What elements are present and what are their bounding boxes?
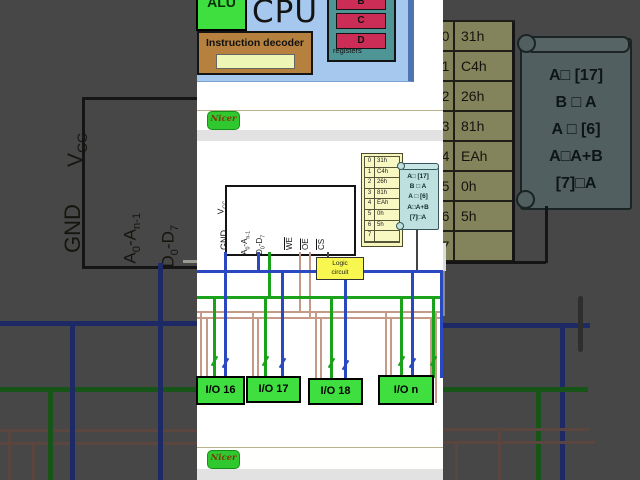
- nicer-logo: Nicer: [207, 111, 240, 130]
- addr-cell: 4: [365, 199, 375, 210]
- logic-label-line1: Logic: [317, 260, 363, 269]
- oe-pin-label: OE: [302, 238, 310, 250]
- scroll-roll: [401, 163, 439, 170]
- bg-data-bus-line-right: [443, 387, 588, 392]
- bg-table-frame-line-v: [512, 22, 515, 263]
- control-branch-line: [252, 312, 254, 378]
- program-line: B □ A: [528, 89, 624, 116]
- bg-control-branch-right-2: [498, 428, 501, 480]
- value-cell: EAh: [455, 142, 513, 172]
- program-line: A□A+B: [399, 203, 437, 213]
- bg-control-bus-line-1: [0, 429, 197, 432]
- scrollbar-thumb[interactable]: [578, 296, 583, 352]
- alu-label: ALU: [198, 0, 245, 10]
- address-pin-line: [257, 252, 260, 271]
- table-row: 7: [438, 232, 513, 262]
- program-line: A□A+B: [528, 143, 624, 170]
- bg-address-branch-line: [70, 321, 75, 480]
- value-cell: C4h: [455, 52, 513, 82]
- decoder-buffer-field: [216, 54, 295, 69]
- value-cell: 26h: [375, 178, 399, 189]
- program-lines: A□ [17] B □ A A □ [6] A□A+B [7]□A: [399, 172, 437, 223]
- bg-memory-table: 031h 1C4h 226h 381h 4EAh 50h 65h 7: [436, 20, 515, 264]
- bg-slide-divider: [183, 260, 197, 263]
- instruction-decoder-label: Instruction decoder: [199, 37, 311, 49]
- logic-circuit-box: Logic circuit: [316, 257, 364, 280]
- address-pins-label: A0-An-1: [241, 231, 252, 255]
- control-branch-line: [320, 318, 322, 380]
- table-row: 50h: [438, 172, 513, 202]
- oe-pin-line: [309, 252, 311, 318]
- bg-address-pins-label: A0-An-1: [121, 213, 143, 264]
- data-branch-line: [264, 297, 267, 378]
- control-branch-line: [390, 318, 392, 377]
- table-row: 4EAh: [438, 142, 513, 172]
- table-row: 381h: [438, 112, 513, 142]
- alu-box: ALU: [196, 0, 247, 31]
- addr-cell: 1: [365, 168, 375, 179]
- cpu-title: CPU: [252, 0, 318, 30]
- registers-caption: registers: [329, 46, 398, 55]
- vcc-label: VCC: [217, 201, 229, 215]
- control-branch-line: [385, 312, 387, 377]
- data-pin-line: [268, 252, 271, 297]
- addr-cell: 3: [365, 189, 375, 200]
- program-line: B □ A: [399, 182, 437, 192]
- logic-label-line2: circuit: [317, 269, 363, 278]
- io-port-box: I/O 16: [196, 376, 245, 405]
- data-bus-line: [197, 296, 443, 299]
- addr-cell: 7: [365, 231, 375, 242]
- bg-address-bus-line-right: [443, 323, 590, 328]
- program-line: [7]□A: [399, 213, 437, 223]
- program-line: A □ [6]: [399, 192, 437, 202]
- io-port-box: I/O n: [378, 375, 434, 405]
- instruction-decoder-box: Instruction decoder: [197, 31, 313, 75]
- value-cell: 81h: [455, 112, 513, 142]
- scroll-connector-line: [416, 230, 418, 272]
- control-branch-line: [200, 312, 202, 378]
- scroll-curl-icon: [397, 162, 405, 170]
- we-pin-label: WE: [286, 237, 294, 250]
- bg-data-bus-line: [0, 387, 197, 392]
- addr-cell: 0: [365, 157, 375, 168]
- control-branch-line: [206, 318, 208, 378]
- bg-control-branch-right-1: [455, 441, 458, 480]
- register-c: C: [336, 13, 386, 29]
- value-cell: 0h: [455, 172, 513, 202]
- value-cell: 81h: [375, 189, 399, 200]
- value-cell: [455, 232, 513, 262]
- bg-address-drop-line: [158, 263, 163, 480]
- table-row: 65h: [365, 221, 399, 232]
- bg-data-branch-line: [48, 387, 53, 480]
- bg-address-branch-right: [560, 323, 565, 480]
- data-branch-line: [400, 297, 403, 377]
- bg-data-pins-label: D0-D7: [159, 225, 181, 268]
- program-line: A□ [17]: [528, 62, 624, 89]
- io-port-box: I/O 18: [308, 378, 363, 405]
- program-line: A □ [6]: [528, 116, 624, 143]
- bg-control-bus-right-2: [443, 441, 595, 444]
- control-branch-line: [257, 318, 259, 378]
- video-frame: VCC GND A0-An-1 D0-D7 031h 1C4h 226h 381…: [0, 0, 640, 480]
- addr-cell: 2: [365, 178, 375, 189]
- nicer-logo: Nicer: [207, 450, 240, 469]
- register-b: B: [336, 0, 386, 10]
- table-row: 381h: [365, 189, 399, 200]
- bg-control-bus-right-1: [443, 428, 590, 431]
- bg-scroll-connector-line: [545, 206, 548, 263]
- control-bus-line-1: [197, 311, 443, 313]
- value-cell: EAh: [375, 199, 399, 210]
- address-branch-line: [440, 271, 443, 378]
- cs-pin-label: CS: [318, 239, 326, 250]
- control-branch-line: [315, 312, 317, 380]
- bg-control-branch-line-1: [8, 429, 11, 480]
- scroll-curl-icon: [517, 34, 536, 53]
- table-row: 1C4h: [438, 52, 513, 82]
- bg-vcc-label: VCC: [65, 133, 90, 167]
- registers-panel: B C D registers: [327, 0, 396, 62]
- nicer-logo-text: Nicer: [208, 451, 239, 466]
- table-row: 4EAh: [365, 199, 399, 210]
- addr-cell: 6: [365, 221, 375, 232]
- scroll-curl-icon: [396, 222, 404, 230]
- bg-control-bus-line-2: [0, 442, 197, 445]
- we-pin-line: [299, 252, 301, 312]
- addr-cell: 5: [365, 210, 375, 221]
- table-row: 031h: [365, 157, 399, 168]
- value-cell: 26h: [455, 82, 513, 112]
- bg-program-lines: A□ [17] B □ A A □ [6] A□A+B [7]□A: [528, 62, 624, 197]
- value-cell: [375, 231, 399, 242]
- bg-scroll-roll: [526, 36, 630, 53]
- slide-gap-band: [197, 469, 443, 480]
- table-row: 65h: [438, 202, 513, 232]
- program-line: A□ [17]: [399, 172, 437, 182]
- bg-control-branch-line-2: [32, 442, 35, 480]
- value-cell: 31h: [455, 22, 513, 52]
- value-cell: 5h: [455, 202, 513, 232]
- table-row: 031h: [438, 22, 513, 52]
- value-cell: 0h: [375, 210, 399, 221]
- video-edge-highlight: [443, 243, 446, 271]
- memory-table: 031h 1C4h 226h 381h 4EAh 50h 65h 7: [364, 156, 400, 243]
- bg-gnd-label: GND: [62, 204, 84, 253]
- bg-address-bus-line: [0, 321, 197, 326]
- value-cell: C4h: [375, 168, 399, 179]
- value-cell: 31h: [375, 157, 399, 168]
- table-row: 1C4h: [365, 168, 399, 179]
- data-branch-line: [330, 297, 333, 380]
- gnd-label: GND: [220, 230, 229, 250]
- nicer-logo-text: Nicer: [208, 112, 239, 127]
- table-row: 226h: [365, 178, 399, 189]
- video-edge-line: [443, 271, 445, 316]
- program-line: [7]□A: [528, 170, 624, 197]
- table-row: 50h: [365, 210, 399, 221]
- table-row: 7: [365, 231, 399, 242]
- table-row: 226h: [438, 82, 513, 112]
- bg-data-branch-right: [536, 387, 541, 480]
- slide-gap-band: [197, 130, 443, 141]
- io-port-box: I/O 17: [246, 376, 301, 403]
- bg-table-frame-line-h: [443, 261, 546, 264]
- data-branch-line: [213, 297, 216, 378]
